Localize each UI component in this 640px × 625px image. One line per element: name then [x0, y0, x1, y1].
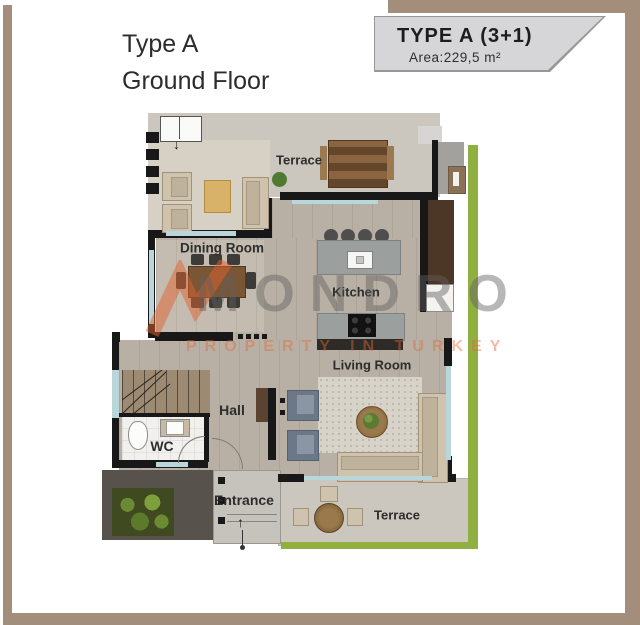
dining-chair: [191, 297, 204, 308]
window-kitchen-top: [292, 200, 378, 204]
bistro-table: [314, 503, 344, 533]
wall-living-right-top: [444, 338, 452, 366]
column: [146, 183, 159, 194]
wc-sink: [166, 421, 184, 435]
wall-living-bottom-left: [278, 474, 304, 482]
type-badge: TYPE A (3+1) Area:229,5 m²: [375, 17, 603, 70]
room-label-hall: Hall: [219, 402, 245, 418]
planter: [112, 488, 174, 536]
room-label-living: Living Room: [333, 358, 412, 373]
room-label-kitchen: Kitchen: [332, 285, 380, 300]
dining-chair: [227, 254, 240, 265]
column-dot: [246, 334, 251, 339]
type-badge-label: TYPE A (3+1): [397, 25, 533, 48]
hall-closet: [256, 388, 268, 422]
dining-chair: [209, 254, 222, 265]
living-armchair: [287, 430, 319, 461]
page-title-line2: Ground Floor: [122, 63, 269, 100]
entry-arrow-icon: ↓: [173, 136, 180, 152]
frame-bottom: [3, 613, 640, 625]
window-dining-left: [149, 250, 154, 324]
plant: [272, 172, 287, 187]
porch-step: [227, 514, 277, 515]
column-dot: [254, 334, 259, 339]
dining-chair: [209, 297, 222, 308]
column: [146, 132, 159, 143]
floorplan-page: Type A Ground Floor TYPE A (3+1) Area:22…: [0, 0, 640, 625]
page-title-line1: Type A: [122, 26, 269, 63]
grass-right: [468, 145, 478, 549]
kitchen-base-cabinet: [317, 339, 403, 350]
dining-chair: [191, 254, 204, 265]
porch-step: [227, 521, 277, 522]
column-dot: [280, 398, 285, 403]
dining-table: [188, 266, 246, 298]
frame-right: [625, 0, 640, 625]
toilet: [128, 421, 148, 450]
terrace-dining-table: [328, 140, 388, 188]
frame-left: [3, 5, 12, 622]
window-dining-top: [166, 231, 236, 236]
room-label-terrace-bottom: Terrace: [374, 508, 420, 523]
entrance-arrow-stem: [242, 530, 243, 546]
room-label-entrance: Entrance: [214, 492, 274, 508]
coffee-table-plant: [363, 413, 379, 429]
dining-chair: [227, 297, 240, 308]
dining-chair: [176, 272, 186, 289]
wall-kitchen-top: [280, 192, 438, 200]
bistro-chair: [347, 508, 363, 526]
entry-marker: [160, 116, 202, 142]
column: [146, 149, 159, 160]
lounge-table: [204, 180, 231, 213]
entrance-arrow-icon: ↑: [237, 514, 244, 530]
frame-top: [388, 0, 640, 13]
window-hall-left: [112, 370, 119, 418]
grass-bottom: [281, 542, 478, 549]
entrance-arrow-dot: [240, 545, 245, 550]
fridge: [426, 284, 454, 312]
dining-chair: [246, 272, 256, 289]
column-dot: [280, 410, 285, 415]
wall-dining-bottom: [155, 332, 233, 341]
room-label-terrace-top: Terrace: [276, 153, 322, 168]
island-sink-drain: [356, 256, 364, 264]
bistro-chair: [320, 486, 338, 502]
wall-stairs-bottom: [118, 413, 210, 417]
porch-column: [218, 517, 225, 524]
living-armchair: [287, 390, 319, 421]
window-living-bottom: [304, 476, 432, 480]
type-badge-area: Area:229,5 m²: [409, 50, 501, 65]
terrace-bench: [387, 146, 394, 180]
wall-terrace-right: [432, 140, 438, 196]
room-label-dining: Dining Room: [180, 241, 264, 256]
wall-hall-living: [268, 388, 276, 460]
cooktop: [348, 314, 376, 337]
page-title: Type A Ground Floor: [122, 26, 269, 100]
porch-column: [218, 477, 225, 484]
room-label-wc: WC: [150, 438, 173, 454]
column-dot: [238, 334, 243, 339]
lounge-sofa: [242, 177, 269, 229]
ac-unit-vent: [453, 172, 459, 186]
bistro-chair: [293, 508, 309, 526]
lounge-armchair: [162, 172, 192, 201]
staircase-winder-lines: [122, 370, 210, 415]
window-living-right: [446, 366, 451, 460]
column-dot: [262, 334, 267, 339]
column: [146, 166, 159, 177]
lounge-armchair: [162, 204, 192, 233]
